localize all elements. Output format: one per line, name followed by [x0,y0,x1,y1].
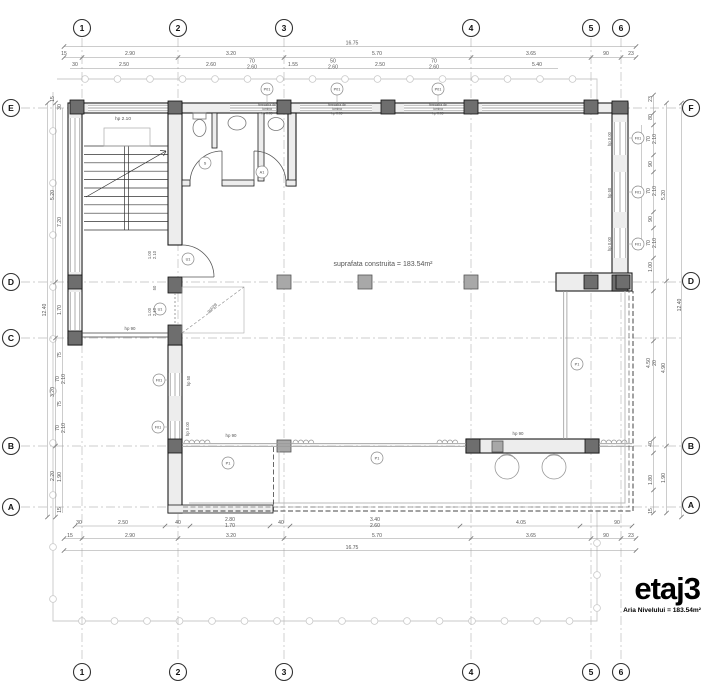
dim-label: 40 [648,441,654,447]
dim-label: 2.801.70 [225,517,235,529]
ghost-post [179,76,186,83]
dim-label: 80 [648,114,654,120]
dim-label: 5.70 [372,51,382,57]
column [466,439,480,453]
ghost-post [436,618,443,625]
annotation-rot: hp 50 [186,375,191,386]
dim-label: 702.10 [55,374,67,384]
dim-label: 75 [57,352,63,358]
dim-label: 7.20 [57,217,63,227]
grid-bubble-top-3-label: 3 [282,23,287,33]
dim-label: 502.60 [328,59,338,71]
dim-label: 2.20 [50,471,56,481]
tag-code: F01 [635,190,642,194]
ghost-post [469,618,476,625]
grid-bubble-bottom-3: 3 [276,664,293,681]
annotation: 1.002.10 [147,307,157,316]
dim-label-rot: 15 [57,507,63,513]
dim-label: 3.65 [526,533,536,539]
sink-right [268,118,284,131]
column [168,277,182,293]
annotation-labels: hp 2.10hp 90hp 90hp 90hp 0.00hp 50hp 0.0… [115,103,612,438]
dim-label: 40 [175,520,181,526]
toilet-tank [193,113,206,119]
grid-bubble-right-A: A [683,497,700,514]
dim-label: 23 [628,533,634,539]
dim-label: 1.55 [288,62,298,68]
dimension-lines [48,47,682,551]
grid-bubble-left-C: C [3,330,20,347]
dim-label: 1.00 [648,262,654,272]
dim-label: 4.05 [516,520,526,526]
dim-label: 4.90 [661,363,667,373]
mid-wall-upper [168,103,182,245]
ghost-post [569,76,576,83]
dim-label: 2.60 [206,62,216,68]
column [168,439,182,453]
ghost-post [309,76,316,83]
column [616,275,630,289]
dim-label: 3.20 [50,387,56,397]
dim-label: 2.50 [119,62,129,68]
ghost-post [212,76,219,83]
annotation-rot: hp 0.00 [185,421,190,436]
dim-label: 3.402.60 [370,517,380,529]
dim-label: 2.50 [118,520,128,526]
lower-level-ghost-outline [53,79,597,621]
dim-label-rot: 1.70 [57,305,63,315]
dim-label: 702.60 [247,59,257,71]
dim-label: 2.50 [375,62,385,68]
dim-label: 3.65 [526,51,536,57]
tag-p1: P1 [222,457,234,469]
tag-p01: P01 [432,83,444,103]
tag-f01: F01 [153,374,168,386]
annotation: suprafata construita = 183.54m² [333,261,433,268]
tag-code: U1 [158,307,163,311]
grid-bubble-top-2-label: 2 [176,23,181,33]
dim-label-rot: 702.10 [55,374,67,384]
glazing-d-to-b [564,291,567,439]
tag-code: P01 [264,87,271,91]
tag-u1: U1 [182,253,194,265]
tag-code: S [204,161,207,165]
dim-label-rot: 75 [57,401,63,407]
dim-label-rot: 30 [57,104,63,110]
annotation-rot: 1.002.10 [147,307,157,316]
dim-label-rot: 702.10 [55,423,67,433]
ghost-post [274,618,281,625]
dim-label-rot: 40 [648,441,654,447]
grid-bubble-top-3: 3 [276,20,293,37]
annotation: hp 2.10 [115,116,131,122]
ghost-post [50,596,57,603]
post [492,441,503,452]
column [381,100,395,114]
column [68,275,82,289]
ghost-post [147,76,154,83]
dim-label-rot: 3.20 [50,387,56,397]
grid-bubble-bottom-5-label: 5 [589,667,594,677]
grid-bubble-top-6-label: 6 [619,23,624,33]
column [70,100,84,114]
annotation-rot: hp 50 [607,187,612,198]
grid-bubble-top-5: 5 [583,20,600,37]
dim-label-rot: 5.20 [661,190,667,200]
tag-code: F01 [156,378,163,382]
column [168,101,182,114]
ghost-post [82,76,89,83]
grid-bubbles: 112233445566EDCBAFDBA [3,20,700,681]
grid-bubble-bottom-2-label: 2 [176,667,181,677]
toilet-bowl [193,120,206,137]
grid-bubble-right-B: B [683,438,700,455]
dim-label: 15 [648,508,654,514]
grid-bubble-top-2: 2 [170,20,187,37]
grid-bubble-bottom-6-label: 6 [619,667,624,677]
dim-label: 30 [76,520,82,526]
annotation-rot: 1.002.10 [147,250,157,259]
ghost-post [594,605,601,612]
tag-f01: F01 [152,421,168,433]
tag-f01: F01 [628,132,644,144]
tag-code: P1 [226,461,231,465]
coil [437,440,458,443]
wall-row-b [466,439,599,453]
dim-label: 1.90 [57,472,63,482]
bath-wall-bottom-3 [286,180,296,186]
dim-label: 1.70 [57,305,63,315]
terrace-chair-2 [542,455,566,479]
grid-bubble-left-D: D [3,274,20,291]
tag-p1: P1 [371,452,383,464]
grid-bubble-right-D: D [683,273,700,290]
dim-label: 12.40 [677,298,683,311]
column [277,100,291,114]
dim-label: 2.90 [125,51,135,57]
dim-label: 702.10 [646,134,658,144]
ghost-post [342,76,349,83]
column [612,101,628,114]
ghost-post [306,618,313,625]
bath-wall-right [288,113,296,186]
floor-plan-page: 16.75152.903.205.703.659023302.502.60702… [0,0,702,700]
dim-label-rot: 5.20 [50,190,56,200]
dim-label: 90 [603,51,609,57]
dim-label: 16.75 [346,41,359,47]
drawing-title: etaj3 [634,571,700,606]
dim-label: 15 [57,507,63,513]
coil [184,440,210,443]
dim-label-rot: 2.20 [50,471,56,481]
annotation-rot: 50 [152,285,157,290]
annotation: hp 0.00 [185,421,190,436]
grid-bubble-bottom-4: 4 [463,664,480,681]
dim-label: 15 [50,96,56,102]
ghost-post [566,618,573,625]
ghost-post [407,76,414,83]
grid-bubble-top-1: 1 [74,20,91,37]
annotation: hp 90 [125,326,137,331]
column [585,439,599,453]
dim-label: 90 [648,216,654,222]
grid-bubble-right-D-label: D [688,276,694,286]
grid-bubble-bottom-1: 1 [74,664,91,681]
dim-label-rot: 4.5020 [646,358,658,368]
dim-label-rot: 702.10 [646,134,658,144]
tag-code: F01 [635,136,642,140]
tag-p1: P1 [571,358,583,370]
dim-label: 5.20 [50,190,56,200]
tag-code: P01 [334,87,341,91]
dim-label: 5.40 [532,62,542,68]
tag-f01: F01 [628,186,644,198]
bath-wall-bottom-2 [222,180,254,186]
annotation: hp 50 [186,375,191,386]
dim-label-rot: 1.00 [648,262,654,272]
tag-code: F01 [635,242,642,246]
drawing-subtitle: Aria Nivelului = 183.54m² [623,607,702,614]
wall-room-bottom [168,505,273,513]
dim-label: 5.70 [372,533,382,539]
dim-label: 90 [614,520,620,526]
terrace-dashed-outer [183,291,633,511]
dim-label-rot: 702.10 [646,238,658,248]
ghost-post [176,618,183,625]
dim-label-rot: 12.40 [42,303,48,316]
ghost-post [339,618,346,625]
ghost-post [241,618,248,625]
coil [293,440,314,443]
annotation: hp 90 [226,433,238,438]
dim-label: 3.20 [226,51,236,57]
ghost-post [472,76,479,83]
staircase [84,128,168,230]
column [464,100,478,114]
annotation: 50 [152,285,157,290]
dim-label-rot: 702.10 [646,186,658,196]
annotation: hp 0.00 [607,236,612,251]
annotation-rot: hp 0.00 [607,131,612,146]
ghost-post [594,572,601,579]
dim-label-rot: 4.90 [661,363,667,373]
tag-p01: P01 [261,83,273,103]
dim-label-rot: 15 [50,96,56,102]
details [82,113,632,479]
ghost-post [50,544,57,551]
dim-label: 30 [72,62,78,68]
terrace-outline [183,291,633,511]
terrace-gray-edge [189,291,625,503]
grid-bubble-top-1-label: 1 [80,23,85,33]
dim-label: 3.20 [226,533,236,539]
title-block: etaj3 Aria Nivelului = 183.54m² [623,571,702,614]
dim-label: 702.60 [429,59,439,71]
annotation: hp 0.00 [607,131,612,146]
dim-label: 23 [648,96,654,102]
grid-bubble-bottom-6: 6 [613,664,630,681]
terrace-chair-1 [495,455,519,479]
ghost-post [371,618,378,625]
terrace-dashed-inner [183,291,629,507]
bath-wall-bottom-1 [182,180,190,186]
ghost-posts [50,76,601,625]
post [277,275,291,289]
columns [68,100,630,453]
dim-label-rot: 80 [648,114,654,120]
dim-label: 90 [648,161,654,167]
ghost-post [144,618,151,625]
ghost-post [534,618,541,625]
grid-bubble-bottom-4-label: 4 [469,667,474,677]
dim-label-rot: 1.80 [648,475,654,485]
ghost-post [439,76,446,83]
grid-bubble-top-4-label: 4 [469,23,474,33]
ghost-post [404,618,411,625]
ghost-post [501,618,508,625]
grid-bubble-left-A: A [3,499,20,516]
grid-bubble-left-E-label: E [8,103,14,113]
grid-bubble-right-F: F [683,100,700,117]
dim-label: 5.20 [661,190,667,200]
dim-label: 1.90 [661,473,667,483]
annotation-rot: hp 0.00 [607,236,612,251]
tag-code: P01 [435,87,442,91]
tag-code: U1 [186,257,191,261]
ghost-post [209,618,216,625]
dim-label: 23 [628,51,634,57]
coil [601,440,627,443]
dim-label: 4.5020 [646,358,658,368]
annotation: 1.002.10 [147,250,157,259]
dim-label: 12.40 [42,303,48,316]
dim-label-rot: 15 [648,508,654,514]
sink-left [228,116,246,130]
stair-landing [104,128,150,146]
dim-label-rot: 1.90 [57,472,63,482]
ghost-post [504,76,511,83]
grid-bubble-top-5-label: 5 [589,23,594,33]
ghost-post [111,618,118,625]
annotation: hp 90 [513,431,525,436]
dim-label-rot: 23 [648,96,654,102]
dim-label: 90 [603,533,609,539]
dimension-ticks [45,44,683,552]
tag-code: F01 [155,425,162,429]
ghost-post [374,76,381,83]
parapet-row-c [82,333,168,337]
dim-label: 30 [57,104,63,110]
ghost-post [277,76,284,83]
ghost-post [594,540,601,547]
column [584,275,598,289]
dim-label: 1.80 [648,475,654,485]
grid-bubble-top-6: 6 [613,20,630,37]
tag-code: P1 [575,362,580,366]
grid-bubble-left-B-label: B [8,441,14,451]
column [168,325,182,345]
tag-f01: F01 [628,238,644,250]
dim-label-rot: 12.40 [677,298,683,311]
ghost-post [114,76,121,83]
grid-bubble-left-D-label: D [8,277,14,287]
dim-label-rot: 90 [648,216,654,222]
grid-bubble-top-4: 4 [463,20,480,37]
ghost-post [244,76,251,83]
grid-bubble-bottom-3-label: 3 [282,667,287,677]
column [68,331,82,345]
dim-label-rot: 90 [648,161,654,167]
grid-bubble-left-C-label: C [8,333,14,343]
dim-label: 15 [67,533,73,539]
ghost-post [537,76,544,83]
dim-label: 75 [57,401,63,407]
dim-label: 16.75 [346,545,359,551]
stair-walk-line [86,151,166,198]
tag-code: A1 [260,170,265,174]
grid-bubble-bottom-1-label: 1 [80,667,85,677]
grid-bubble-right-B-label: B [688,441,694,451]
dim-label: 702.10 [646,238,658,248]
grid-bubble-right-A-label: A [688,500,694,510]
grid-bubble-left-B: B [3,438,20,455]
dim-label-rot: 75 [57,352,63,358]
dim-label: 40 [278,520,284,526]
post [464,275,478,289]
dim-label-rot: 7.20 [57,217,63,227]
floor-plan-drawing: 16.75152.903.205.703.659023302.502.60702… [0,0,702,700]
grid-bubble-left-E: E [3,100,20,117]
annotation: hp 50 [607,187,612,198]
ghost-top-line [57,79,597,103]
dim-label: 15 [61,51,67,57]
tag-a1: A1 [256,166,268,178]
grid-bubble-bottom-5: 5 [583,664,600,681]
tag-s: S [199,157,211,169]
bath-partition-1 [212,113,217,148]
grid-bubble-right-F-label: F [688,103,693,113]
tag-code: P1 [375,456,380,460]
grid-bubble-bottom-2: 2 [170,664,187,681]
dim-label-rot: 1.90 [661,473,667,483]
tag-p01: P01 [331,83,343,103]
dimension-labels: 16.75152.903.205.703.659023302.502.60702… [42,41,683,552]
grid-bubble-left-A-label: A [8,502,14,512]
post [358,275,372,289]
column [584,100,598,114]
dim-label: 702.10 [55,423,67,433]
dim-label: 702.10 [646,186,658,196]
structural-grid [21,38,681,662]
dim-label: 2.90 [125,533,135,539]
